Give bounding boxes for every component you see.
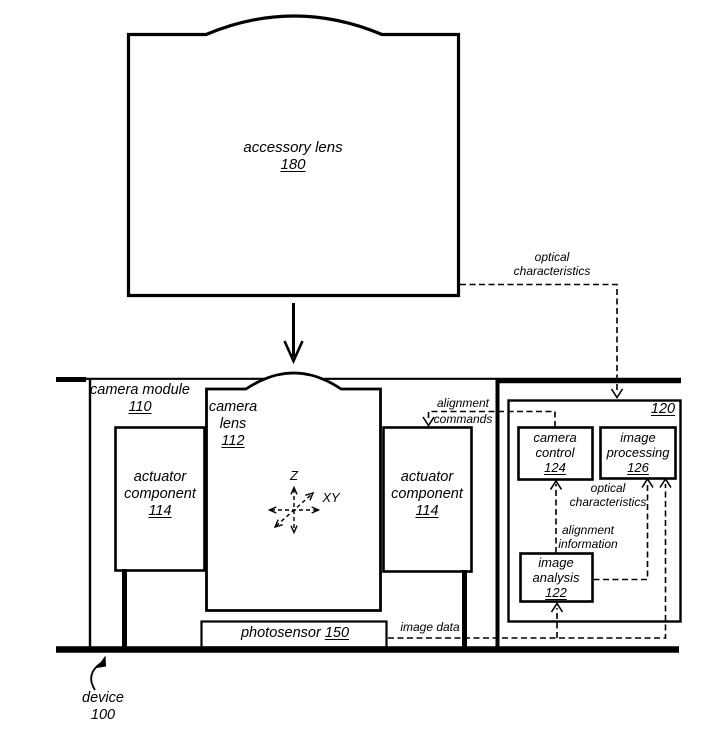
actuator-left-ref: 114 (148, 503, 171, 519)
camera-module-ref: 110 (128, 399, 151, 415)
alignment-commands-label: alignment commands (434, 397, 493, 425)
image-processing-ref: 126 (627, 460, 649, 475)
image-analysis-ref: 122 (545, 585, 567, 600)
image-data-label: image data (400, 621, 459, 635)
device-ref-arrow-head (97, 656, 107, 669)
camera-control-label: camera control 124 (533, 430, 576, 475)
diagram-linework (0, 0, 722, 742)
image-processing-label: image processing 126 (607, 430, 670, 475)
device-ref: 100 (91, 707, 115, 723)
image-analysis-label: image analysis 122 (533, 555, 580, 600)
camera-lens-label: camera lens 112 (209, 399, 257, 449)
device-label: device 100 (82, 690, 124, 724)
optical-characteristics-inner-label: optical characteristics (570, 482, 647, 510)
xy-axis-label: XY (322, 490, 339, 505)
optical-characteristics-top-label: optical characteristics (514, 251, 591, 279)
actuator-right-label: actuator component 114 (391, 469, 463, 519)
actuator-left-label: actuator component 114 (124, 469, 196, 519)
alignment-information-label: alignment information (558, 524, 617, 552)
image-data-branch-arrowhead (552, 604, 563, 613)
accessory-lens-label: accessory lens 180 (243, 139, 342, 174)
actuator-right-ref: 114 (415, 503, 438, 519)
z-axis-label: Z (290, 468, 298, 483)
optical-characteristics-arrowhead (612, 389, 623, 398)
camera-lens-ref: 112 (221, 433, 244, 449)
photosensor-label: photosensor 150 (241, 625, 349, 642)
camera-control-ref: 124 (544, 460, 566, 475)
camera-module-label: camera module 110 (90, 382, 190, 416)
optical-characteristics-route (460, 285, 617, 393)
accessory-lens-ref: 180 (280, 156, 305, 173)
photosensor-ref: 150 (325, 625, 349, 641)
alignment-commands-arrowhead (423, 417, 434, 426)
controller-ref-120: 120 (651, 401, 675, 418)
patent-figure-canvas: accessory lens 180 optical characteristi… (0, 0, 722, 742)
